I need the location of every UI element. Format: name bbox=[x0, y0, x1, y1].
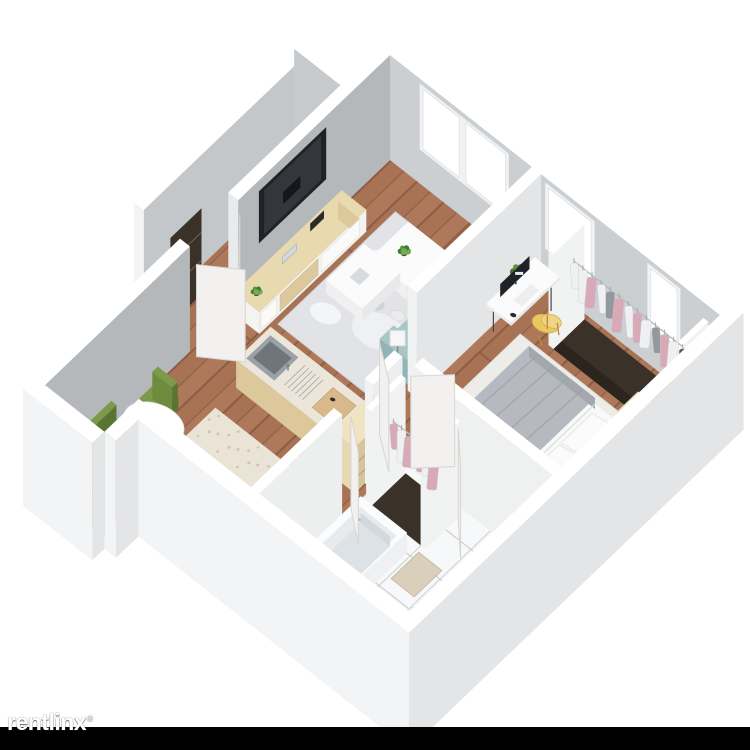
watermark-bar bbox=[0, 727, 750, 750]
apartment-3d-floor-plan bbox=[0, 0, 750, 750]
registered-mark: ® bbox=[87, 714, 92, 723]
rentlinx-logo: rentlinx® bbox=[7, 711, 92, 734]
door-leaf bbox=[411, 375, 455, 469]
door-leaf bbox=[197, 265, 246, 362]
rentlinx-logo-text: rentlinx bbox=[7, 709, 86, 735]
floor-plan-stage: rentlinx® bbox=[0, 0, 750, 750]
floor-lamp-icon bbox=[390, 331, 405, 346]
